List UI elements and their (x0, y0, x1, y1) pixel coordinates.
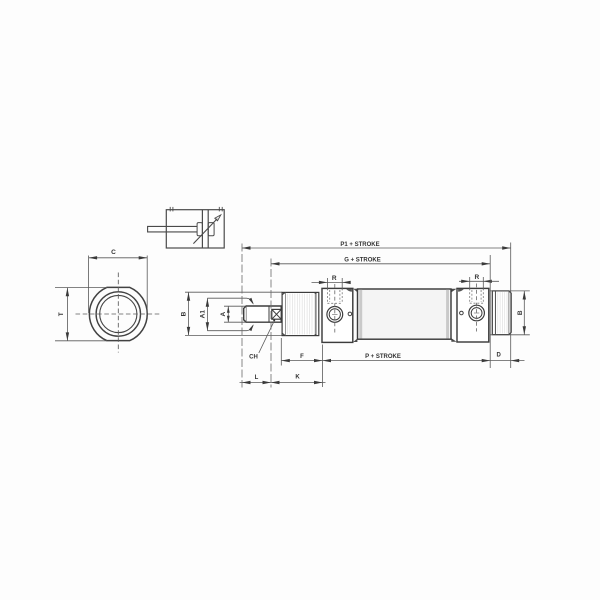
svg-text:D: D (497, 353, 502, 359)
svg-text:B: B (181, 311, 188, 316)
svg-text:P1 + STROKE: P1 + STROKE (340, 242, 379, 248)
svg-text:G + STROKE: G + STROKE (344, 258, 381, 264)
svg-text:A1: A1 (199, 310, 206, 319)
svg-text:T: T (58, 312, 65, 316)
svg-text:A: A (220, 312, 227, 317)
svg-text:B: B (517, 310, 524, 315)
svg-text:P + STROKE: P + STROKE (365, 354, 401, 360)
svg-text:C: C (111, 249, 116, 256)
svg-text:K: K (295, 375, 300, 381)
svg-text:L: L (255, 375, 259, 381)
svg-text:F: F (300, 354, 304, 360)
svg-text:CH: CH (249, 355, 258, 361)
svg-text:R: R (332, 275, 337, 282)
svg-text:R: R (475, 274, 480, 281)
